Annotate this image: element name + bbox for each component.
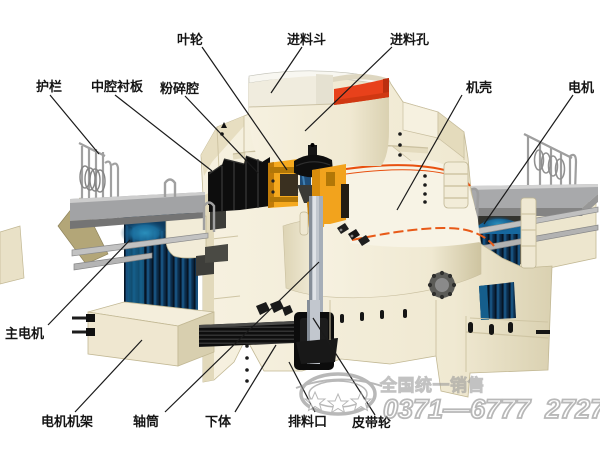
svg-text:0371—6777 2727: 0371—6777 2727	[383, 394, 600, 424]
svg-text:粉碎腔: 粉碎腔	[160, 81, 199, 96]
svg-text:叶轮: 叶轮	[177, 32, 203, 47]
svg-text:主电机: 主电机	[5, 326, 44, 341]
svg-text:护栏: 护栏	[36, 79, 62, 94]
svg-text:电机: 电机	[568, 80, 594, 95]
svg-text:全国统一销售: 全国统一销售	[379, 375, 485, 395]
svg-text:机壳: 机壳	[466, 80, 492, 95]
svg-text:下体: 下体	[205, 414, 232, 429]
svg-text:中腔衬板: 中腔衬板	[91, 79, 144, 94]
svg-text:进料孔: 进料孔	[390, 32, 429, 47]
svg-text:电机机架: 电机机架	[41, 414, 93, 429]
svg-text:排料口: 排料口	[288, 414, 327, 429]
svg-text:轴筒: 轴筒	[133, 414, 159, 429]
svg-text:进料斗: 进料斗	[287, 32, 326, 47]
